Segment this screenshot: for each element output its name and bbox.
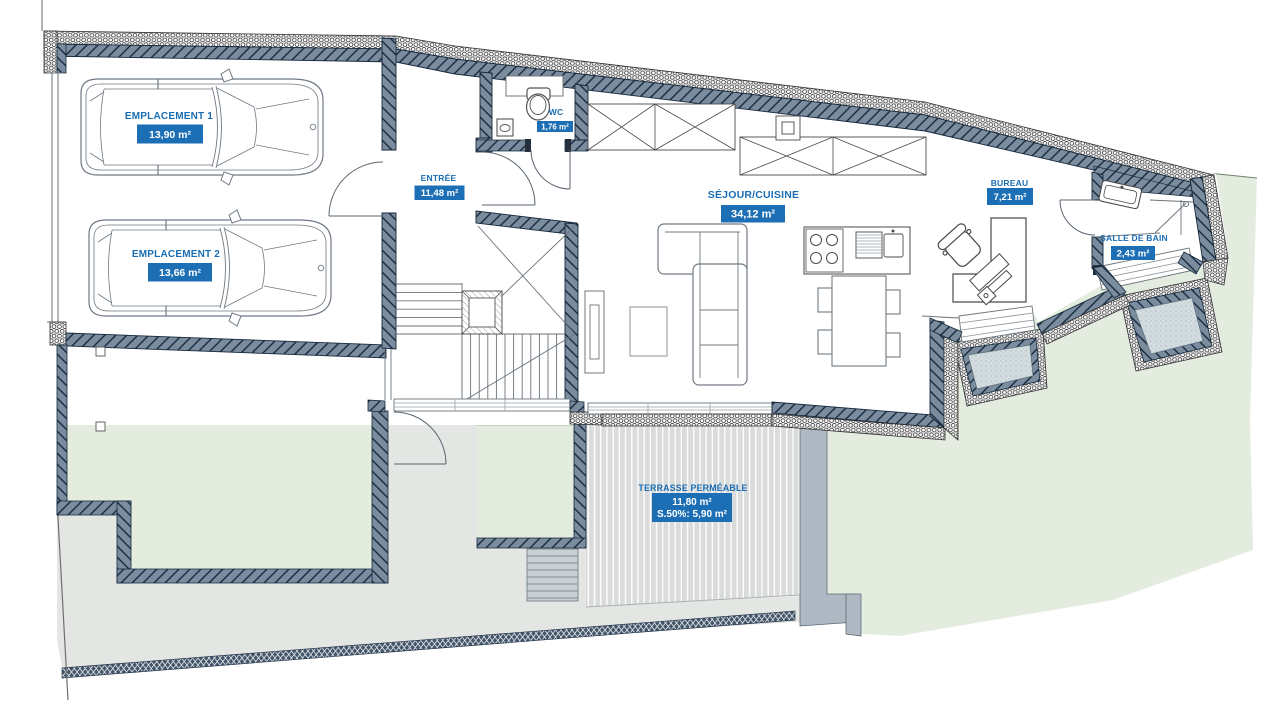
svg-text:TERRASSE PERMÉABLE: TERRASSE PERMÉABLE — [638, 483, 747, 493]
svg-text:1,76 m²: 1,76 m² — [541, 122, 569, 131]
svg-text:13,90 m²: 13,90 m² — [149, 129, 192, 141]
svg-text:WC: WC — [549, 107, 564, 117]
svg-text:EMPLACEMENT 1: EMPLACEMENT 1 — [125, 111, 213, 122]
svg-text:7,21 m²: 7,21 m² — [994, 192, 1027, 203]
svg-text:BUREAU: BUREAU — [991, 178, 1029, 188]
svg-text:SÉJOUR/CUISINE: SÉJOUR/CUISINE — [708, 188, 800, 201]
svg-text:S.50%: 5,90 m²: S.50%: 5,90 m² — [657, 509, 728, 520]
svg-text:11,48 m²: 11,48 m² — [421, 188, 459, 199]
svg-text:SALLE DE BAIN: SALLE DE BAIN — [1100, 233, 1168, 243]
svg-text:11,80 m²: 11,80 m² — [672, 497, 712, 508]
svg-text:2,43 m²: 2,43 m² — [1117, 248, 1150, 259]
svg-text:ENTRÉE: ENTRÉE — [421, 173, 457, 183]
svg-text:EMPLACEMENT 2: EMPLACEMENT 2 — [132, 249, 220, 260]
svg-text:13,66 m²: 13,66 m² — [159, 267, 202, 279]
svg-text:34,12 m²: 34,12 m² — [731, 209, 775, 221]
